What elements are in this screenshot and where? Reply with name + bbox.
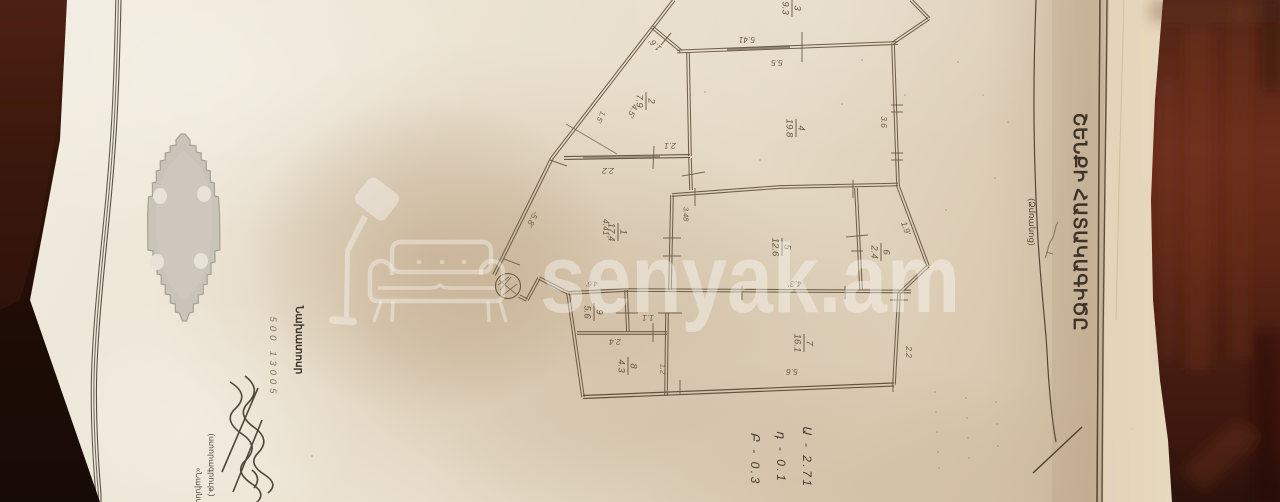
svg-text:2.2: 2.2 bbox=[904, 345, 914, 358]
svg-text:3.48: 3.48 bbox=[681, 207, 690, 222]
svg-text:1.2: 1.2 bbox=[658, 364, 667, 375]
svg-text:senyak.am: senyak.am bbox=[540, 224, 960, 333]
svg-text:2: 2 bbox=[646, 97, 657, 104]
svg-text:5.5: 5.5 bbox=[771, 58, 783, 68]
svg-text:19.8: 19.8 bbox=[784, 119, 795, 138]
svg-text:4: 4 bbox=[796, 125, 807, 130]
svg-text:3.6: 3.6 bbox=[879, 116, 889, 128]
svg-text:5.41: 5.41 bbox=[738, 35, 755, 45]
svg-text:7: 7 bbox=[804, 340, 815, 346]
svg-text:3: 3 bbox=[792, 5, 803, 11]
svg-text:(Ձմռանոց): (Ձմռանոց) bbox=[1027, 198, 1037, 246]
svg-text:8: 8 bbox=[628, 363, 639, 369]
svg-text:«Նախնաժող»: «Նախնաժող» bbox=[194, 468, 203, 502]
svg-text:9.3: 9.3 bbox=[780, 1, 791, 15]
svg-text:դ - 0.1: դ - 0.1 bbox=[774, 431, 788, 484]
svg-text:2.1: 2.1 bbox=[664, 141, 677, 151]
svg-text:16.1: 16.1 bbox=[792, 334, 803, 353]
svg-text:5.6: 5.6 bbox=[786, 367, 798, 377]
svg-text:Ա - 2.71: Ա - 2.71 bbox=[800, 425, 814, 488]
svg-text:4.3: 4.3 bbox=[616, 359, 627, 373]
svg-text:500 13005: 500 13005 bbox=[267, 317, 278, 398]
svg-text:2.4: 2.4 bbox=[609, 337, 622, 347]
svg-text:Նախատոսր: Նախատոսր bbox=[293, 305, 305, 375]
svg-text:2.2: 2.2 bbox=[602, 166, 615, 176]
svg-text:(ստորագրութ.): (ստորագրութ.) bbox=[207, 433, 216, 496]
svg-text:Բ - 0.3: Բ - 0.3 bbox=[748, 432, 762, 486]
